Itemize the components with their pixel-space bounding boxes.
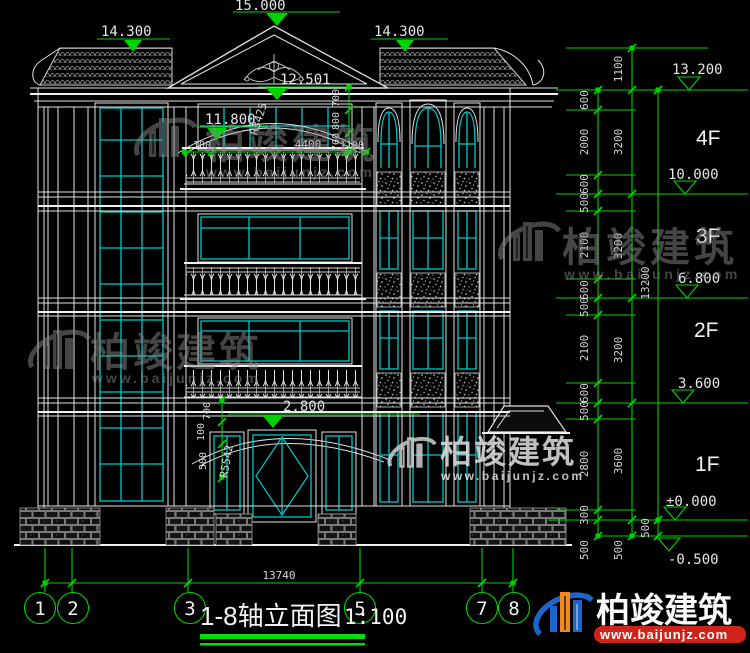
watermark-site: www.baijunjz.com: [440, 469, 585, 483]
floor-4f: 4F: [696, 127, 721, 150]
level-minus500: -0.500: [668, 552, 719, 568]
title-underline-thin: [200, 643, 365, 646]
axis-bubble-1: 1: [34, 598, 45, 620]
detail-6: 500: [578, 297, 591, 317]
right-eave-elevation-label: 14.300: [374, 24, 425, 40]
arc-top-level-label: 12.501: [280, 72, 331, 88]
watermark-brand: 柏竣建筑: [440, 434, 576, 470]
detail-7: 2100: [578, 335, 591, 362]
entry-chain-2: 500: [198, 452, 209, 470]
entry-chain-0: 700: [202, 402, 213, 420]
watermark-site: www.baijunjz.com: [563, 266, 741, 282]
detail-0: 600: [578, 90, 591, 110]
brand-logo-url: www.baijunjz.com: [599, 627, 728, 642]
detail-8: 600: [578, 383, 591, 403]
floor-1f: 1F: [695, 453, 720, 476]
detail-2: 600: [578, 174, 591, 194]
watermark-site: www.baijunjz.com: [205, 164, 375, 180]
drawing-title: 1-8轴立面图: [200, 601, 342, 631]
detail-9: 500: [578, 401, 591, 421]
watermark-site: www.baijunjz.com: [91, 370, 261, 386]
floorchain-5: 500: [612, 540, 625, 560]
watermark-brand: 柏竣建筑: [205, 123, 377, 167]
canvas-background: [0, 0, 750, 653]
floorchain-3: 3200: [612, 337, 625, 364]
axis-bubble-2: 2: [67, 598, 78, 620]
watermark-brand: 柏竣建筑: [562, 226, 738, 270]
floorchain-0: 1100: [612, 56, 625, 83]
detail-12: 500: [578, 540, 591, 560]
level-0000: ±0.000: [666, 494, 717, 510]
level-13200: 13.200: [672, 62, 723, 78]
floor-2f: 2F: [694, 319, 719, 342]
floorchain-1: 3200: [612, 129, 625, 156]
drawing-scale: 1:100: [344, 605, 407, 629]
axis-bubble-7: 7: [476, 598, 487, 620]
detail-1: 2000: [578, 129, 591, 156]
watermark-brand: 柏竣建筑: [90, 331, 262, 375]
arc-chain-0: 700: [331, 89, 342, 107]
floorchain-4: 3600: [612, 448, 625, 475]
axis-bubble-8: 8: [508, 598, 519, 620]
railing-3f: [186, 267, 360, 295]
entry-level-label: 2.800: [283, 399, 325, 415]
detail-5: 600: [578, 280, 591, 300]
detail-3: 500: [578, 193, 591, 213]
axis-bubble-3: 3: [184, 598, 195, 620]
entry-chain-1: 100: [196, 423, 207, 441]
overall-width-label: 13740: [262, 569, 295, 582]
title-underline-thick: [200, 634, 365, 639]
detail-11: 300: [578, 505, 591, 525]
elevation-drawing: 15.000 14.300 14.300 12.501 11.800 R3425: [0, 0, 750, 653]
total-1: 500: [639, 518, 652, 538]
left-eave-elevation-label: 14.300: [101, 24, 152, 40]
brand-logo-name: 柏竣建筑: [596, 591, 732, 630]
